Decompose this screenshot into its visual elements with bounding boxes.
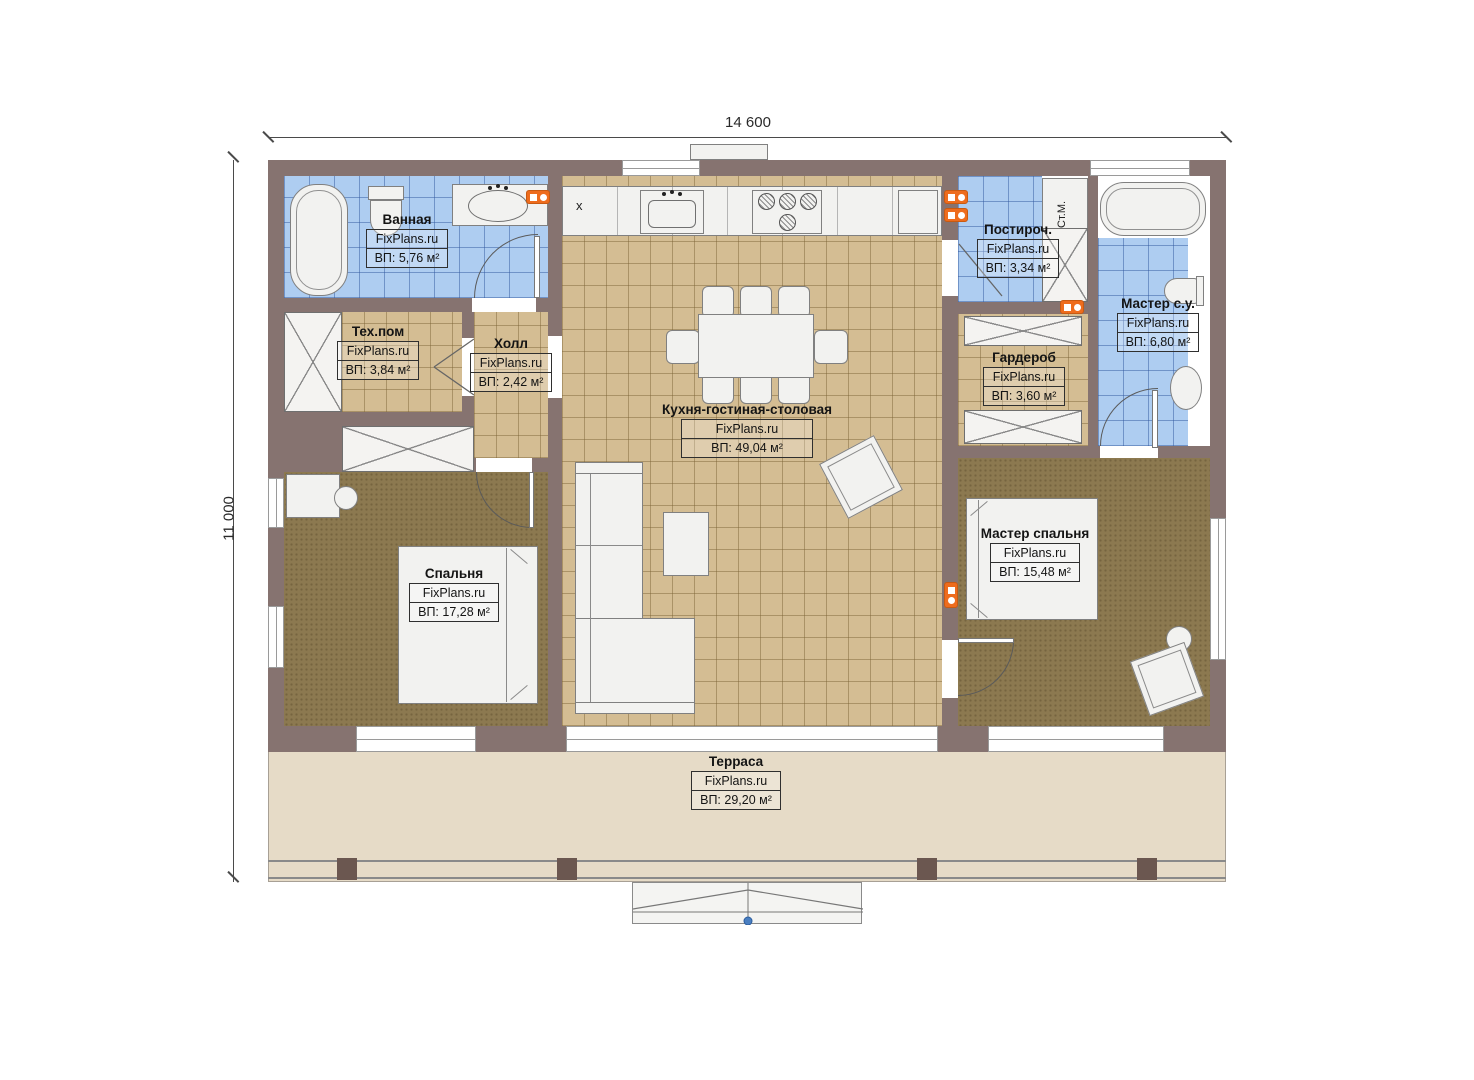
heater-icon bbox=[944, 190, 968, 204]
room-name: Холл bbox=[466, 336, 556, 351]
sofa-armrest-top bbox=[575, 462, 643, 474]
window-right-master-bedroom bbox=[1210, 518, 1226, 660]
wardrobe-unit-bottom bbox=[964, 410, 1082, 444]
bathroom-faucet-icon bbox=[496, 184, 500, 188]
room-area: ВП: 17,28 м² bbox=[410, 602, 498, 621]
room-label-terrace: Терраса FixPlans.ru ВП: 29,20 м² bbox=[670, 754, 802, 810]
stove-burner-icon bbox=[800, 193, 817, 210]
dining-chair bbox=[666, 330, 700, 364]
stove-burner-icon bbox=[779, 193, 796, 210]
window-bottom-bedroom bbox=[356, 726, 476, 752]
heater-icon bbox=[944, 208, 968, 222]
wall-laundry-masterbath bbox=[1088, 176, 1098, 458]
master-bath-door-gap bbox=[1100, 446, 1158, 458]
room-brand: FixPlans.ru bbox=[984, 368, 1065, 386]
window-left-bedroom-2 bbox=[268, 606, 284, 668]
room-info-box: FixPlans.ru ВП: 17,28 м² bbox=[409, 583, 499, 622]
bathroom-door-leaf bbox=[534, 236, 540, 298]
room-label-bedroom: Спальня FixPlans.ru ВП: 17,28 м² bbox=[402, 566, 506, 622]
master-bathtub-inner-rim bbox=[1106, 188, 1200, 230]
stove-burner-icon bbox=[758, 193, 775, 210]
kitchen-x-mark: x bbox=[576, 198, 583, 213]
room-area: ВП: 2,42 м² bbox=[471, 372, 552, 391]
room-label-bathroom: Ванная FixPlans.ru ВП: 5,76 м² bbox=[352, 212, 462, 268]
entry-steps bbox=[632, 882, 862, 924]
dimension-height-label: 11 000 bbox=[221, 474, 238, 564]
room-label-master-bedroom: Мастер спальня FixPlans.ru ВП: 15,48 м² bbox=[968, 526, 1102, 582]
window-top-kitchen bbox=[622, 160, 700, 176]
coffee-table bbox=[663, 512, 709, 576]
heater-icon bbox=[944, 582, 958, 608]
room-area: ВП: 29,20 м² bbox=[692, 790, 780, 809]
laundry-door-gap bbox=[942, 240, 958, 296]
room-area: ВП: 3,34 м² bbox=[978, 258, 1059, 277]
kitchen-faucet-icon bbox=[670, 190, 674, 194]
toilet-tank bbox=[368, 186, 404, 200]
terrace-railing-line-bottom bbox=[268, 877, 1226, 879]
room-area: ВП: 6,80 м² bbox=[1118, 332, 1199, 351]
wall-left-separator bbox=[548, 176, 562, 726]
room-info-box: FixPlans.ru ВП: 2,42 м² bbox=[470, 353, 553, 392]
wall-chunk-left bbox=[284, 426, 342, 472]
sofa-back-line bbox=[590, 466, 591, 710]
room-name: Ванная bbox=[352, 212, 462, 227]
room-brand: FixPlans.ru bbox=[1118, 314, 1199, 332]
room-label-master-bath: Мастер с.у. FixPlans.ru ВП: 6,80 м² bbox=[1104, 296, 1212, 352]
terrace-post bbox=[557, 858, 577, 880]
fridge bbox=[898, 190, 938, 234]
room-info-box: FixPlans.ru ВП: 5,76 м² bbox=[366, 229, 449, 268]
bedroom-stool bbox=[334, 486, 358, 510]
sofa-seat-line bbox=[576, 545, 642, 546]
sofa-armrest-bottom bbox=[575, 702, 695, 714]
room-name: Тех.пом bbox=[328, 324, 428, 339]
outer-wall-top bbox=[268, 160, 1226, 176]
stove bbox=[752, 190, 822, 234]
dimension-width-label: 14 600 bbox=[696, 114, 800, 131]
dining-table bbox=[698, 314, 814, 378]
room-info-box: FixPlans.ru ВП: 49,04 м² bbox=[681, 419, 813, 458]
terrace-post bbox=[917, 858, 937, 880]
room-info-box: FixPlans.ru ВП: 3,34 м² bbox=[977, 239, 1060, 278]
room-name: Постироч. bbox=[972, 222, 1064, 237]
room-brand: FixPlans.ru bbox=[991, 544, 1079, 562]
room-brand: FixPlans.ru bbox=[367, 230, 448, 248]
room-area: ВП: 3,60 м² bbox=[984, 386, 1065, 405]
bathroom-sink bbox=[468, 190, 528, 222]
master-bedroom-door-leaf bbox=[958, 638, 1014, 643]
room-info-box: FixPlans.ru ВП: 6,80 м² bbox=[1117, 313, 1200, 352]
room-brand: FixPlans.ru bbox=[978, 240, 1059, 258]
room-name: Кухня-гостиная-столовая bbox=[658, 402, 836, 417]
room-label-wardrobe: Гардероб FixPlans.ru ВП: 3,60 м² bbox=[972, 350, 1076, 406]
window-bottom-master-bedroom bbox=[988, 726, 1164, 752]
dimension-line-top bbox=[268, 137, 1226, 138]
room-brand: FixPlans.ru bbox=[471, 354, 552, 372]
bedroom-vanity bbox=[286, 474, 340, 518]
room-info-box: FixPlans.ru ВП: 3,60 м² bbox=[983, 367, 1066, 406]
room-name: Мастер с.у. bbox=[1104, 296, 1212, 311]
master-sink bbox=[1170, 366, 1202, 410]
terrace-sliding-door bbox=[566, 726, 938, 752]
step-axis-dot bbox=[744, 917, 752, 925]
entry-steps-marking-icon bbox=[633, 883, 863, 925]
wall-wardrobe-south bbox=[958, 446, 1088, 458]
room-label-kitchen-living: Кухня-гостиная-столовая FixPlans.ru ВП: … bbox=[658, 402, 836, 458]
room-info-box: FixPlans.ru ВП: 3,84 м² bbox=[337, 341, 420, 380]
room-area: ВП: 3,84 м² bbox=[338, 360, 419, 379]
terrace-post bbox=[337, 858, 357, 880]
floor-plan-canvas: 14 600 11 000 bbox=[0, 0, 1474, 1080]
heater-icon bbox=[1060, 300, 1084, 314]
bathtub-inner-rim bbox=[296, 190, 342, 290]
room-area: ВП: 49,04 м² bbox=[682, 438, 812, 457]
room-name: Терраса bbox=[670, 754, 802, 769]
heater-icon bbox=[526, 190, 550, 204]
bedroom-door-leaf bbox=[529, 472, 534, 528]
room-brand: FixPlans.ru bbox=[338, 342, 419, 360]
room-area: ВП: 15,48 м² bbox=[991, 562, 1079, 581]
room-info-box: FixPlans.ru ВП: 29,20 м² bbox=[691, 771, 781, 810]
master-bath-door-leaf bbox=[1152, 390, 1158, 448]
bathroom-door-gap bbox=[472, 298, 536, 312]
room-label-tech: Тех.пом FixPlans.ru ВП: 3,84 м² bbox=[328, 324, 428, 380]
room-area: ВП: 5,76 м² bbox=[367, 248, 448, 267]
kitchen-sink-basin bbox=[648, 200, 696, 228]
room-label-laundry: Постироч. FixPlans.ru ВП: 3,34 м² bbox=[972, 222, 1064, 278]
window-top-masterbath bbox=[1090, 160, 1190, 176]
room-label-hall: Холл FixPlans.ru ВП: 2,42 м² bbox=[466, 336, 556, 392]
wall-tech-south bbox=[284, 412, 474, 426]
window-left-bedroom-1 bbox=[268, 478, 284, 528]
stove-burner-icon bbox=[779, 214, 796, 231]
room-name: Спальня bbox=[402, 566, 506, 581]
outer-wall-right bbox=[1210, 160, 1226, 752]
sofa-chaise-section bbox=[575, 618, 695, 714]
wardrobe-unit-top bbox=[964, 316, 1082, 346]
terrace-post bbox=[1137, 858, 1157, 880]
master-bedroom-door-gap bbox=[942, 640, 958, 698]
room-name: Гардероб bbox=[972, 350, 1076, 365]
bedroom-bed-headboard-line bbox=[506, 548, 507, 702]
bedroom-closet bbox=[342, 426, 474, 472]
room-name: Мастер спальня bbox=[968, 526, 1102, 541]
dining-chair bbox=[814, 330, 848, 364]
room-info-box: FixPlans.ru ВП: 15,48 м² bbox=[990, 543, 1080, 582]
exterior-bay-block bbox=[690, 144, 768, 160]
bedroom-door-gap bbox=[476, 458, 532, 472]
room-brand: FixPlans.ru bbox=[682, 420, 812, 438]
terrace-railing-line-top bbox=[268, 860, 1226, 862]
room-brand: FixPlans.ru bbox=[692, 772, 780, 790]
room-brand: FixPlans.ru bbox=[410, 584, 498, 602]
